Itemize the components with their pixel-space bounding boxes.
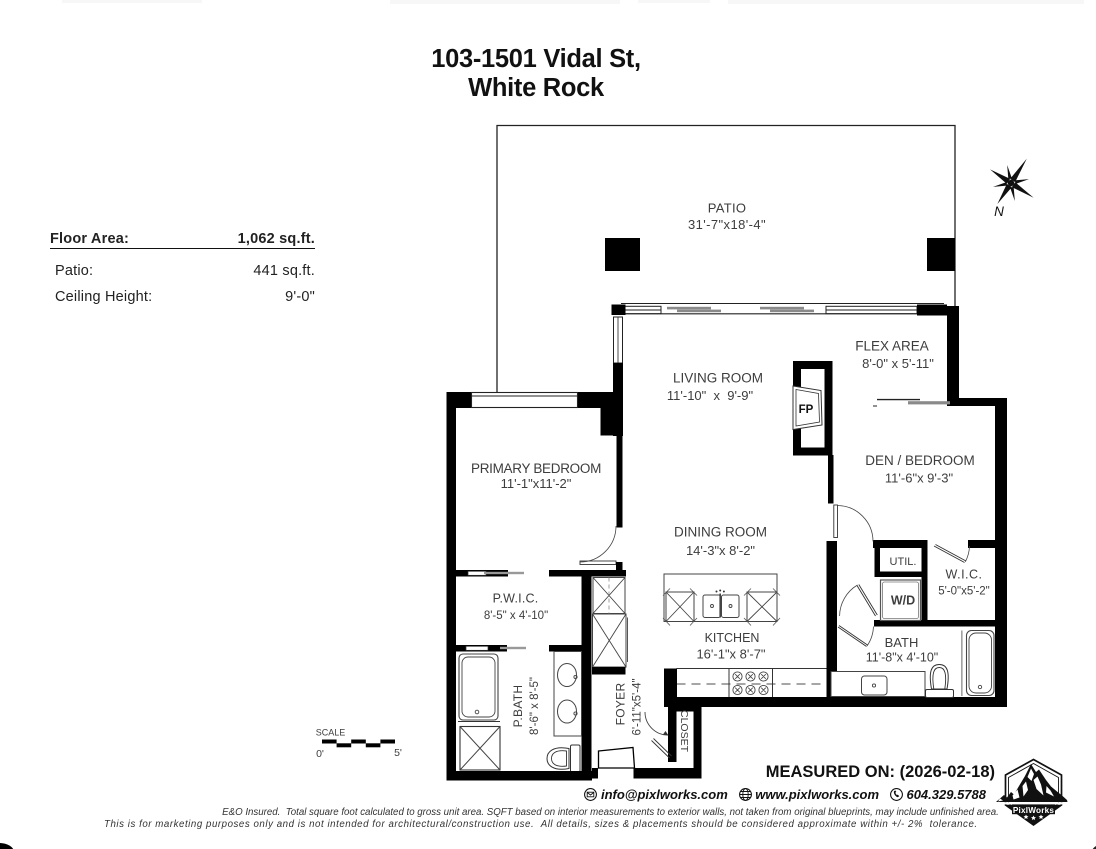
svg-text:6'-11"x5'-4": 6'-11"x5'-4" [632, 678, 644, 735]
svg-text:PRIMARY BEDROOM: PRIMARY BEDROOM [471, 461, 601, 476]
svg-text:5'-0"x5'-2": 5'-0"x5'-2" [938, 586, 990, 598]
svg-text:N: N [994, 204, 1004, 219]
svg-text:BATH: BATH [885, 635, 919, 650]
svg-text:KITCHEN: KITCHEN [705, 631, 760, 645]
svg-text:11'-10" x 9'-9": 11'-10" x 9'-9" [667, 388, 754, 403]
svg-text:8'-0" x 5'-11": 8'-0" x 5'-11" [862, 356, 934, 371]
svg-text:FOYER: FOYER [614, 683, 628, 726]
svg-text:DEN / BEDROOM: DEN / BEDROOM [865, 453, 975, 468]
svg-text:W/D: W/D [891, 594, 915, 608]
svg-text:8'-6" x 8'-5": 8'-6" x 8'-5" [529, 677, 541, 735]
svg-text:FLEX AREA: FLEX AREA [855, 339, 929, 354]
svg-text:CLOSET: CLOSET [678, 710, 690, 753]
svg-text:5': 5' [394, 747, 402, 759]
svg-text:FP: FP [799, 404, 814, 416]
svg-text:LIVING ROOM: LIVING ROOM [673, 371, 763, 386]
svg-text:0': 0' [316, 748, 324, 760]
svg-text:11'-8"x 4'-10": 11'-8"x 4'-10" [866, 651, 938, 665]
svg-text:PixlWorks: PixlWorks [1013, 806, 1054, 815]
svg-text:P.BATH: P.BATH [511, 685, 525, 728]
svg-text:11'-6"x 9'-3": 11'-6"x 9'-3" [885, 471, 954, 486]
svg-text:31'-7"x18'-4": 31'-7"x18'-4" [688, 217, 766, 232]
svg-text:SCALE: SCALE [316, 728, 346, 738]
svg-text:PATIO: PATIO [708, 201, 747, 216]
svg-text:11'-1"x11'-2": 11'-1"x11'-2" [501, 476, 572, 491]
svg-text:14'-3"x 8'-2": 14'-3"x 8'-2" [686, 543, 755, 558]
svg-text:W.I.C.: W.I.C. [945, 568, 982, 582]
svg-text:16'-1"x 8'-7": 16'-1"x 8'-7" [696, 647, 765, 662]
svg-text:DINING ROOM: DINING ROOM [674, 525, 767, 540]
svg-text:P.W.I.C.: P.W.I.C. [493, 592, 539, 606]
svg-text:UTIL.: UTIL. [890, 556, 917, 568]
svg-text:8'-5" x 4'-10": 8'-5" x 4'-10" [484, 610, 548, 622]
